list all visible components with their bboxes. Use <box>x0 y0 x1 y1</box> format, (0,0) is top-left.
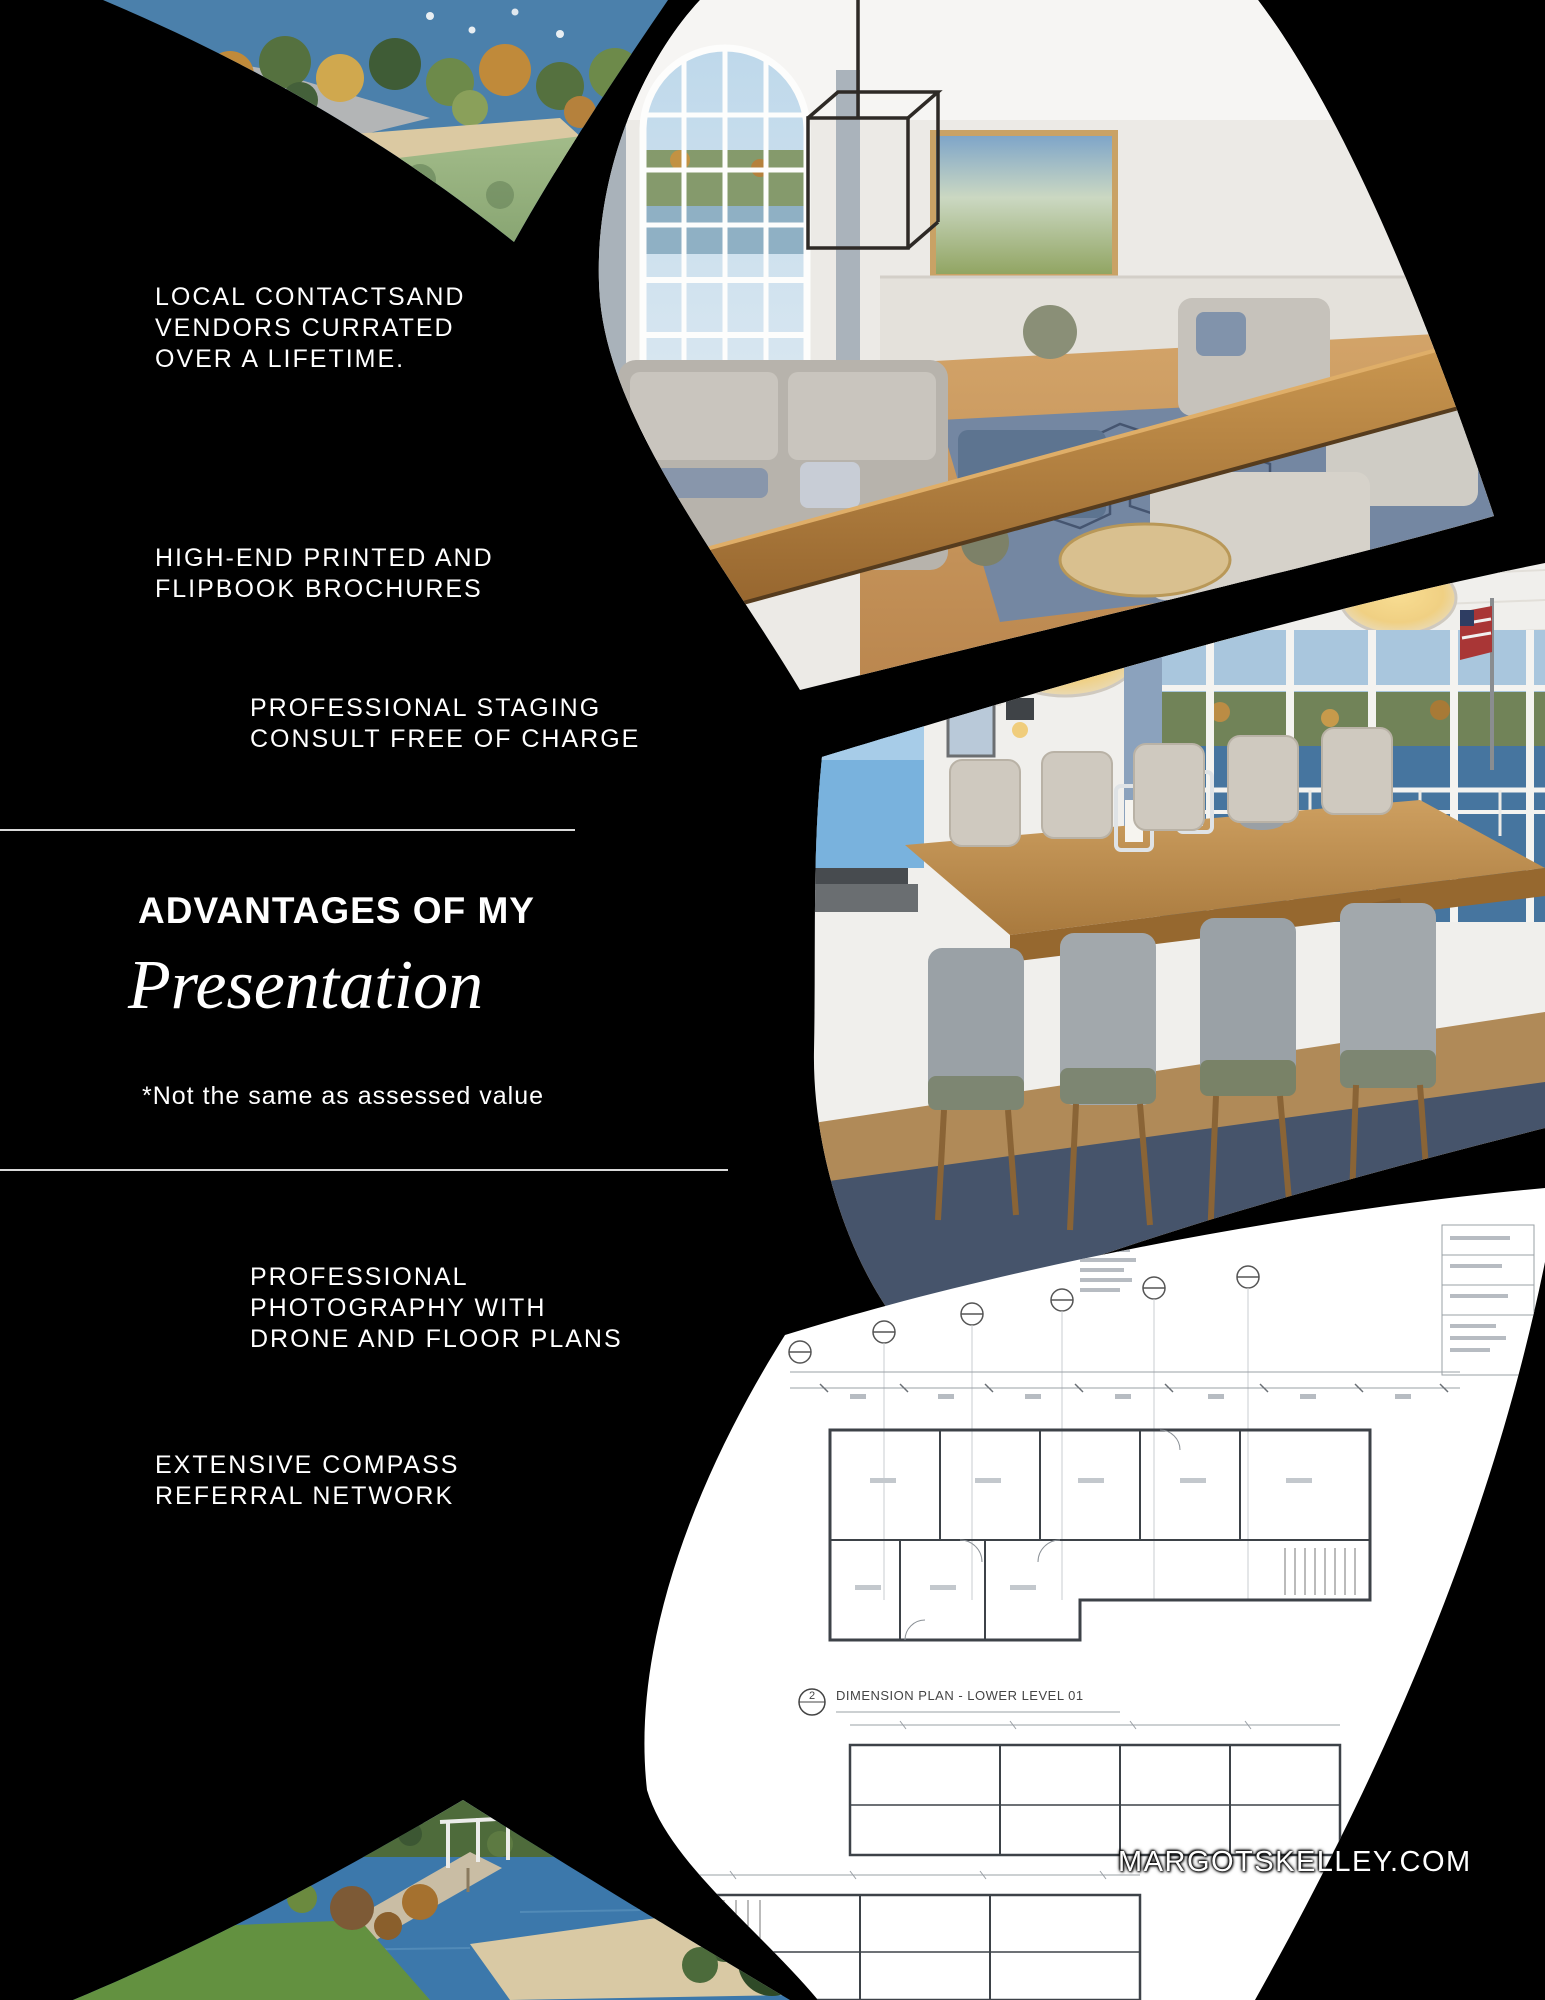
floorplan-sheet-no: 2 <box>809 1690 815 1702</box>
benefit-line: PHOTOGRAPHY WITH <box>250 1293 623 1324</box>
benefit-line: OVER A LIFETIME. <box>155 344 465 375</box>
photo-living-room <box>590 0 1510 700</box>
benefit-line: DRONE AND FLOOR PLANS <box>250 1324 623 1355</box>
benefit-line: HIGH-END PRINTED AND <box>155 543 494 574</box>
divider-top <box>0 829 575 831</box>
benefit-local-contacts: LOCAL CONTACTSAND VENDORS CURRATED OVER … <box>155 282 465 375</box>
website-link[interactable]: MARGOTSKELLEY.COM <box>1118 1846 1472 1879</box>
heading-kicker: ADVANTAGES OF MY <box>138 890 535 932</box>
photo-aerial-lake-top <box>90 0 690 250</box>
heading-title: Presentation <box>128 946 483 1026</box>
benefit-line: PROFESSIONAL STAGING <box>250 693 640 724</box>
benefit-line: FLIPBOOK BROCHURES <box>155 574 494 605</box>
benefit-staging: PROFESSIONAL STAGING CONSULT FREE OF CHA… <box>250 693 640 755</box>
benefit-line: LOCAL CONTACTSAND <box>155 282 465 313</box>
benefit-line: CONSULT FREE OF CHARGE <box>250 724 640 755</box>
divider-bottom <box>0 1169 728 1171</box>
benefit-line: EXTENSIVE COMPASS <box>155 1450 459 1481</box>
benefit-line: REFERRAL NETWORK <box>155 1481 459 1512</box>
heading-footnote: *Not the same as assessed value <box>142 1082 544 1111</box>
benefit-line: PROFESSIONAL <box>250 1262 623 1293</box>
benefit-referral: EXTENSIVE COMPASS REFERRAL NETWORK <box>155 1450 459 1512</box>
benefit-photography: PROFESSIONAL PHOTOGRAPHY WITH DRONE AND … <box>250 1262 623 1355</box>
benefit-brochures: HIGH-END PRINTED AND FLIPBOOK BROCHURES <box>155 543 494 605</box>
brochure-page: 2 DIMENSION PLAN - LOWER LEVEL 01 <box>0 0 1545 2000</box>
floorplan-caption-text: DIMENSION PLAN - LOWER LEVEL 01 <box>836 1688 1084 1703</box>
benefit-line: VENDORS CURRATED <box>155 313 465 344</box>
